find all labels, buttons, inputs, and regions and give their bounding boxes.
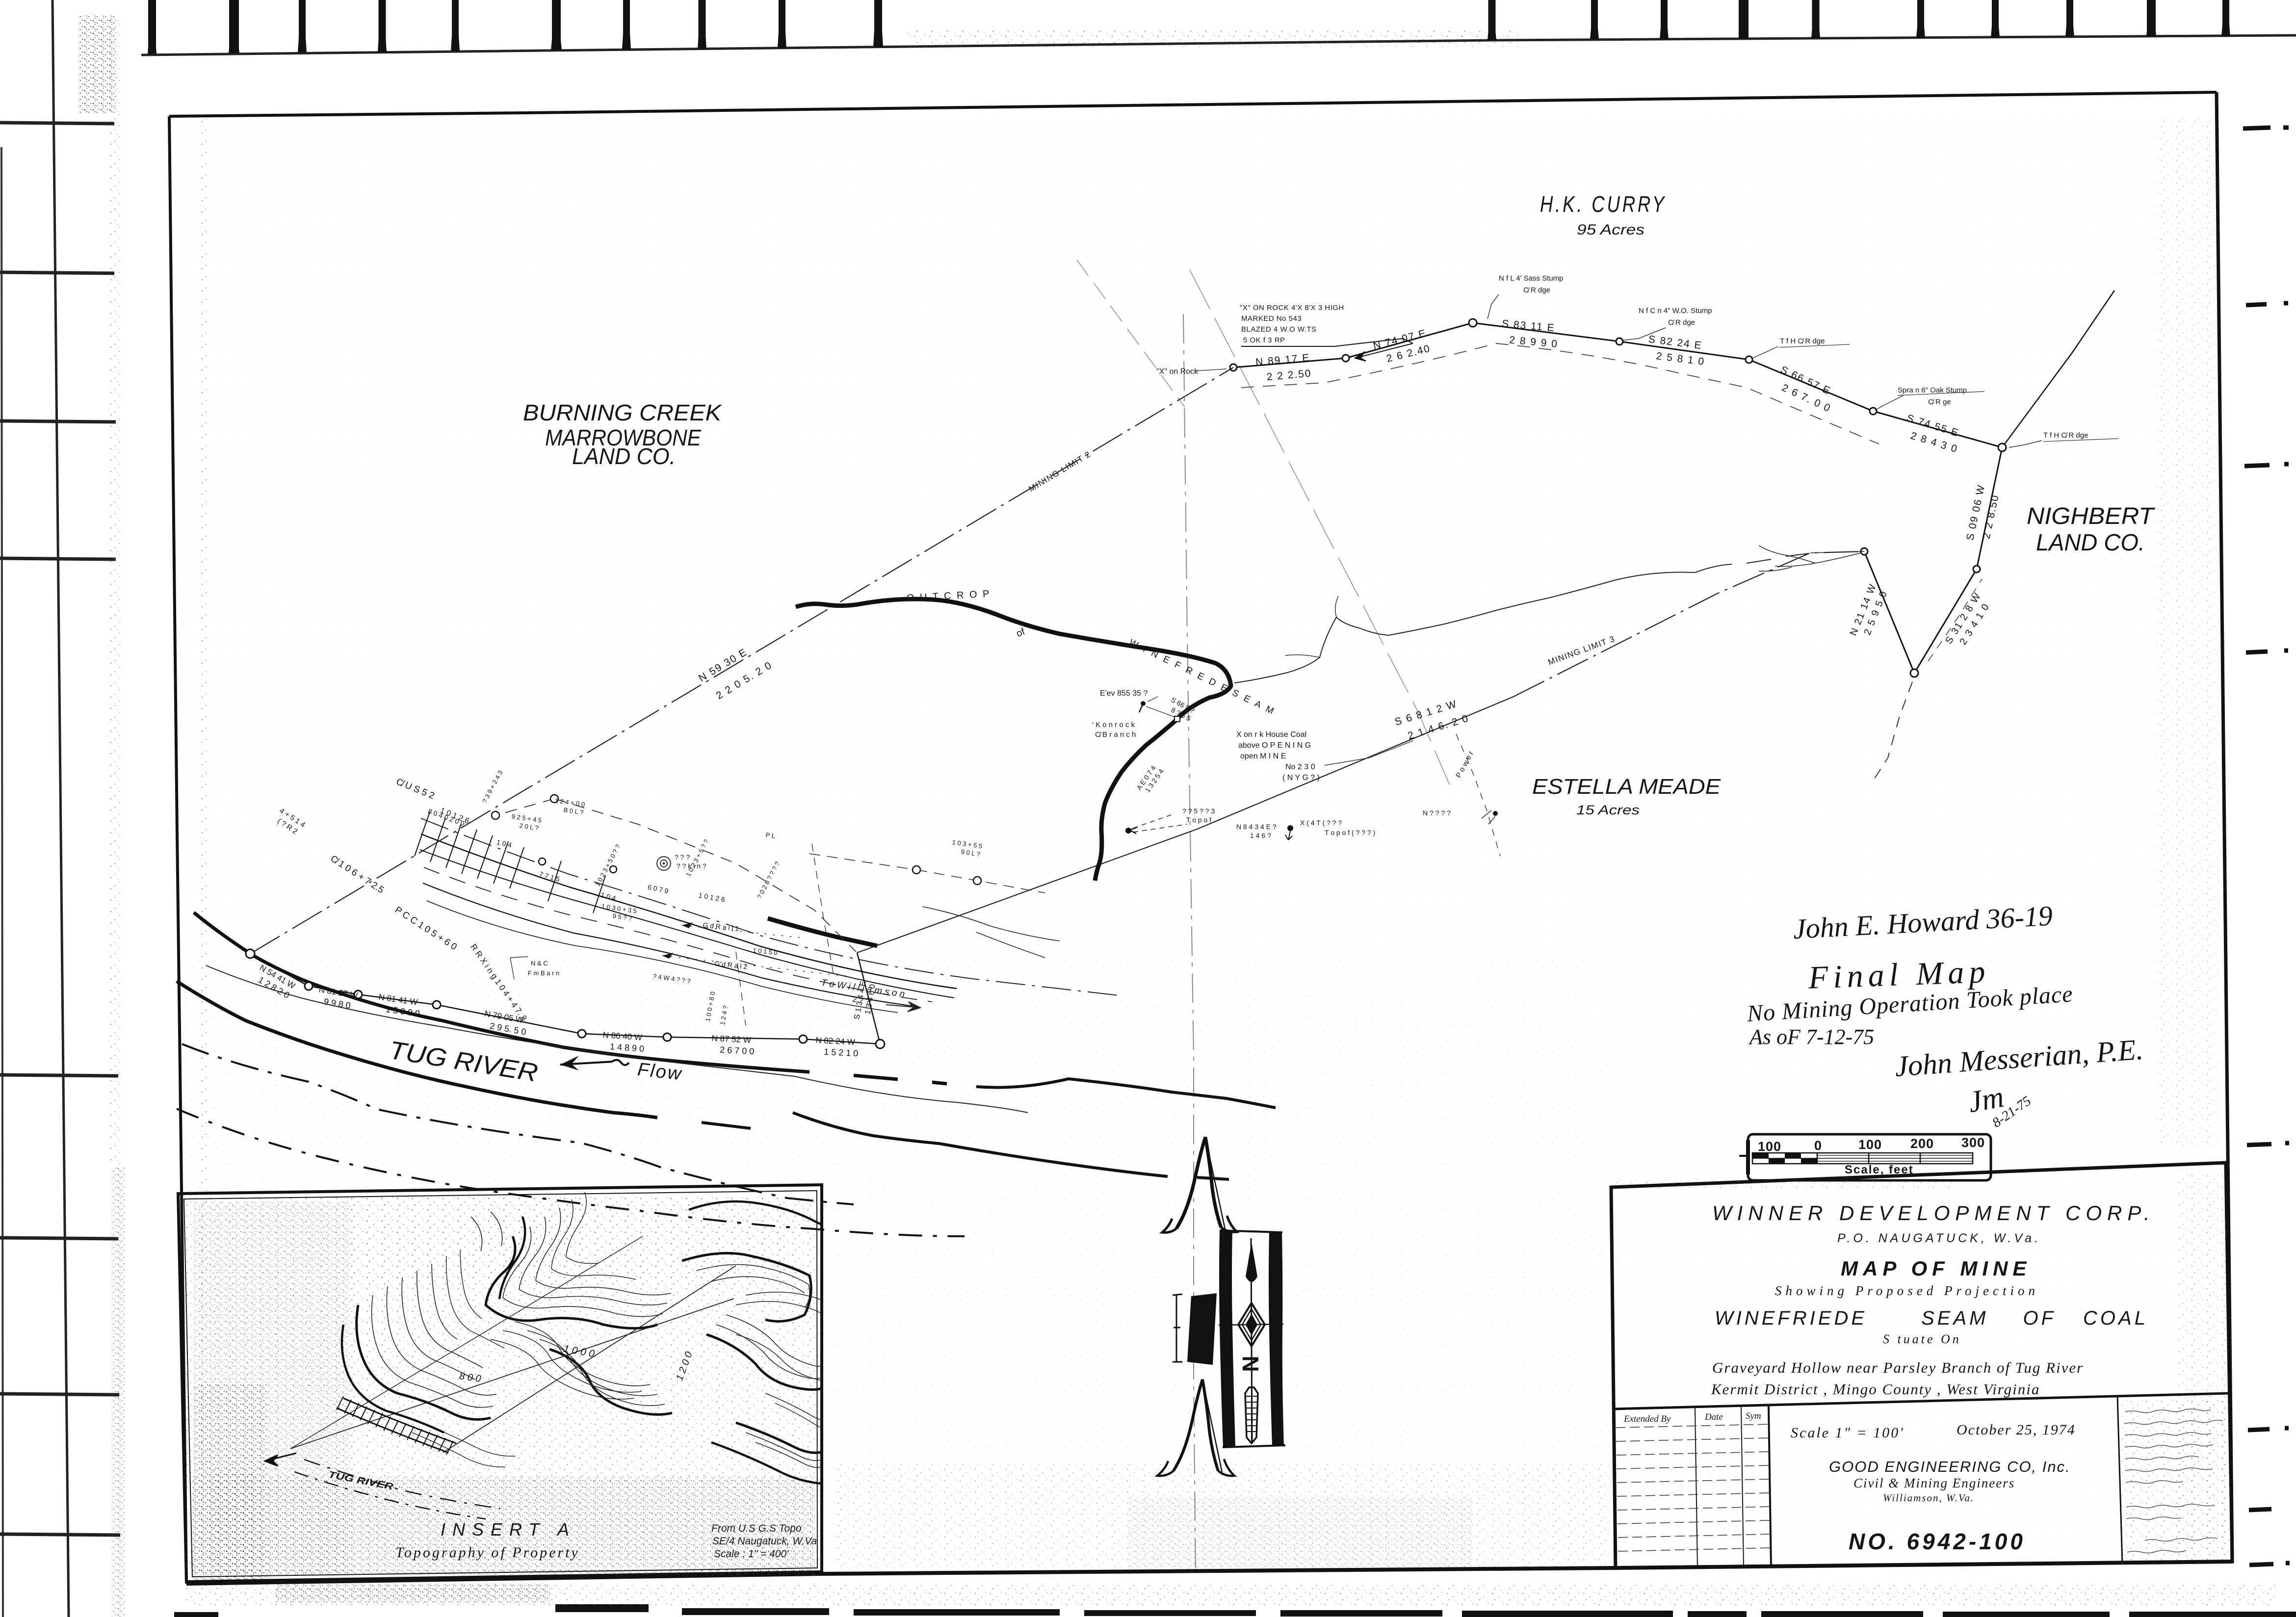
svg-text:C̸ R dge: C̸ R dge — [1668, 318, 1695, 327]
svg-text:100: 100 — [1858, 1137, 1882, 1152]
svg-text:N & C: N & C — [531, 960, 548, 967]
svg-text:0: 0 — [1814, 1138, 1822, 1153]
svg-text:H.K. CURRY: H.K. CURRY — [1540, 191, 1667, 217]
svg-text:Graveyard Hollow near Parsl: Graveyard Hollow near Parsley Branch of … — [1712, 1359, 2084, 1376]
svg-text:? ? k i n ?: ? ? k i n ? — [677, 862, 706, 870]
svg-text:From U.S G.S Topo: From U.S G.S Topo — [711, 1523, 802, 1534]
svg-text:Extended By: Extended By — [1623, 1414, 1671, 1424]
svg-text:LAND CO.: LAND CO. — [572, 443, 676, 469]
svg-text:WINNER DEVELOPMENT CORP.: WINNER DEVELOPMENT CORP. — [1712, 1201, 2155, 1225]
svg-text:T o p o f: T o p o f — [1186, 816, 1211, 824]
svg-text:October 25, 1974: October 25, 1974 — [1957, 1422, 2076, 1438]
svg-text:Topography of Property: Topography of Property — [395, 1544, 580, 1561]
svg-text:C̸ R ge: C̸ R ge — [1928, 398, 1951, 406]
svg-text:1 4 6 ?: 1 4 6 ? — [1250, 832, 1271, 839]
svg-text:"X" ON ROCK 4'X 8'X 3 HIGH: "X" ON ROCK 4'X 8'X 3 HIGH — [1240, 304, 1344, 312]
svg-text:Spra n 6" Oak Stump: Spra n 6" Oak Stump — [1898, 386, 1967, 394]
svg-text:C̸ R dge: C̸ R dge — [1523, 286, 1550, 294]
svg-text:BURNING CREEK: BURNING CREEK — [523, 400, 722, 425]
svg-text:Date: Date — [1704, 1412, 1723, 1422]
svg-text:X on r k House Coal: X on r k House Coal — [1236, 730, 1306, 739]
svg-text:Showing Proposed Projection: Showing Proposed Projection — [1775, 1283, 2039, 1298]
svg-text:WINEFRIEDESEAMOFCOAL: WINEFRIEDESEAMOFCOAL — [1715, 1307, 2148, 1329]
svg-text:5 OK f 3 RP: 5 OK f 3 RP — [1243, 336, 1285, 344]
svg-text:N f L 4' Sass Stump: N f L 4' Sass Stump — [1499, 274, 1564, 283]
svg-text:? ? ?: ? ? ? — [675, 853, 690, 861]
svg-text:200: 200 — [1910, 1136, 1934, 1151]
svg-text:Civil & Mining Engineers: Civil & Mining Engineers — [1853, 1476, 2015, 1490]
svg-text:MARKED No 543: MARKED No 543 — [1241, 314, 1302, 323]
svg-text:INSERT A: INSERT A — [441, 1519, 576, 1539]
svg-text:15 Acres: 15 Acres — [1576, 803, 1640, 817]
svg-text:1 5 2 1 0: 1 5 2 1 0 — [824, 1047, 859, 1059]
svg-text:C̸ B r a n c h: C̸ B r a n c h — [1095, 730, 1136, 739]
svg-text:( N Y G ? ): ( N Y G ? ) — [1282, 774, 1320, 782]
svg-text:' K o n r o c k: ' K o n r o c k — [1092, 721, 1135, 729]
svg-text:N 8 4 3 4 E ?: N 8 4 3 4 E ? — [1236, 823, 1277, 831]
svg-text:Scale : 1" = 400': Scale : 1" = 400' — [714, 1548, 789, 1560]
svg-text:GOOD ENGINEERING CO, Inc.: GOOD ENGINEERING CO, Inc. — [1829, 1458, 2071, 1475]
svg-text:Williamson, W.Va.: Williamson, W.Va. — [1883, 1492, 1974, 1504]
svg-text:N ? ? ? ?: N ? ? ? ? — [1423, 809, 1451, 817]
svg-text:P.O. NAUGATUCK, W.Va.: P.O. NAUGATUCK, W.Va. — [1837, 1231, 2041, 1245]
svg-text:T f H C̸ R dge: T f H C̸ R dge — [2043, 431, 2088, 440]
svg-text:F m B a r n: F m B a r n — [528, 969, 559, 977]
svg-text:open M I N E: open M I N E — [1240, 752, 1286, 760]
svg-text:BLAZED 4 W.O W.TS: BLAZED 4 W.O W.TS — [1241, 325, 1317, 334]
svg-text:Sym: Sym — [1746, 1411, 1761, 1421]
svg-text:N f C n 4" W.O. Stump: N f C n 4" W.O. Stump — [1639, 307, 1712, 315]
svg-text:100: 100 — [1758, 1139, 1781, 1154]
svg-text:300: 300 — [1961, 1135, 1985, 1150]
svg-text:Scale 1" = 100': Scale 1" = 100' — [1791, 1425, 1905, 1441]
svg-text:N: N — [1238, 1356, 1263, 1372]
svg-text:As oF 7-12-75: As oF 7-12-75 — [1748, 1025, 1874, 1049]
svg-text:? ? 5 ? ? 3: ? ? 5 ? ? 3 — [1182, 807, 1215, 815]
svg-text:"X" on Rock: "X" on Rock — [1156, 367, 1199, 376]
svg-text:LAND CO.: LAND CO. — [2036, 530, 2145, 556]
svg-text:Kermit District , Mingo Cou: Kermit District , Mingo County , West Vi… — [1711, 1381, 2040, 1398]
svg-text:X ( 4 T ( ? ? ?: X ( 4 T ( ? ? ? — [1300, 819, 1342, 827]
svg-text:above O P E N I N G: above O P E N I N G — [1238, 741, 1311, 750]
svg-text:T o p o f ( ? ? ? ): T o p o f ( ? ? ? ) — [1325, 829, 1375, 836]
svg-text:No 2 3 0: No 2 3 0 — [1285, 763, 1315, 771]
svg-text:NIGHBERT: NIGHBERT — [2027, 503, 2156, 529]
svg-text:ESTELLA MEADE: ESTELLA MEADE — [1532, 775, 1721, 799]
svg-text:P L: P L — [765, 831, 776, 840]
svg-text:SE/4 Naugatuck, W.Va: SE/4 Naugatuck, W.Va — [712, 1536, 817, 1547]
svg-text:S tuate On: S tuate On — [1883, 1332, 1961, 1346]
svg-text:T f H C̸ R dge: T f H C̸ R dge — [1780, 337, 1825, 345]
svg-text:NO. 6942-100: NO. 6942-100 — [1849, 1529, 2026, 1554]
svg-text:2 6 7 0 0: 2 6 7 0 0 — [720, 1045, 755, 1057]
svg-text:95 Acres: 95 Acres — [1577, 222, 1644, 238]
svg-text:E'ev 855 35 ?: E'ev 855 35 ? — [1100, 689, 1148, 698]
svg-text:MAP OF MINE: MAP OF MINE — [1841, 1257, 2031, 1280]
